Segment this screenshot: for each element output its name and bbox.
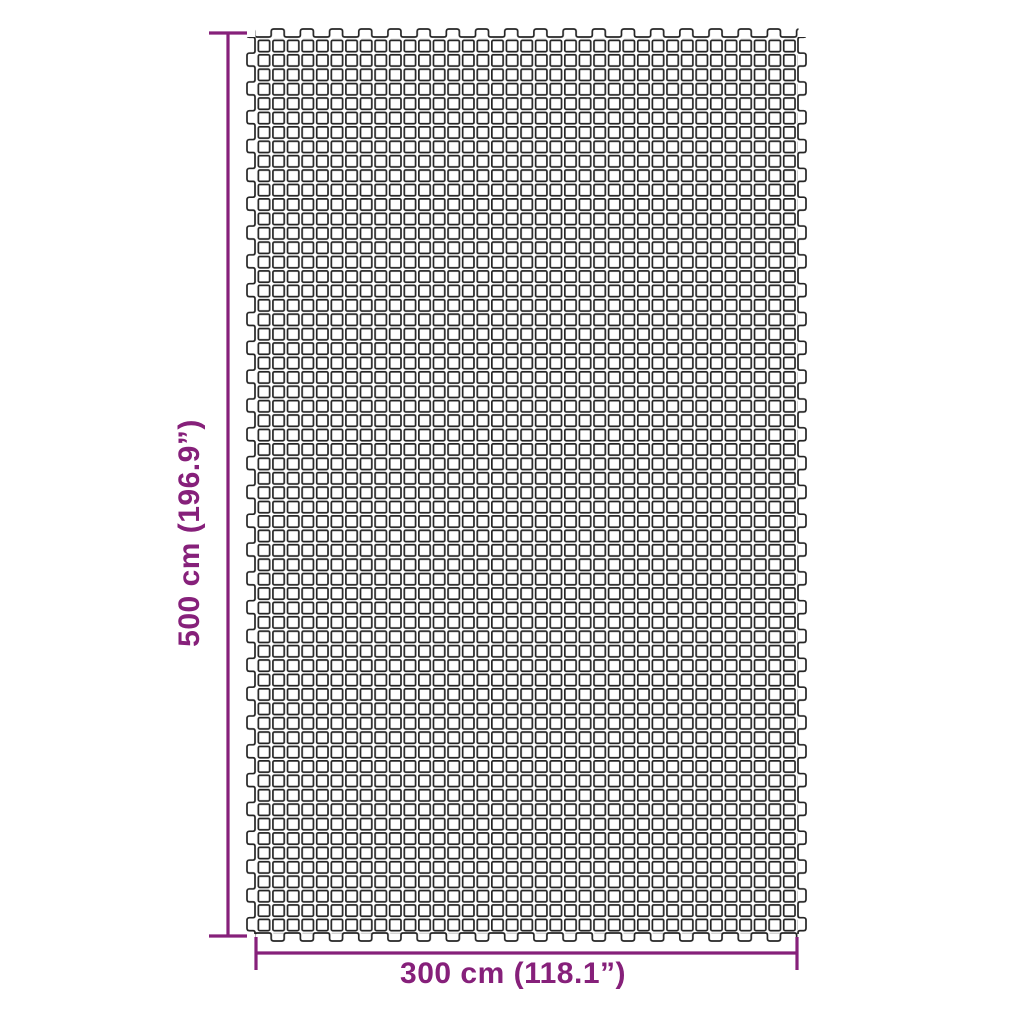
mesh-mat-graphic <box>0 0 1024 1024</box>
mat-edge-bottom <box>256 932 799 942</box>
height-dimension-label: 500 cm (196.9”) <box>173 419 207 647</box>
mat-edge-left <box>246 37 256 934</box>
mat-mesh-surface <box>256 38 798 933</box>
product-diagram-canvas: 500 cm (196.9”) 300 cm (118.1”) <box>0 0 1024 1024</box>
mat-edge-right <box>797 37 807 934</box>
mat-edge-top <box>256 28 799 38</box>
width-dimension-label: 300 cm (118.1”) <box>400 957 626 991</box>
